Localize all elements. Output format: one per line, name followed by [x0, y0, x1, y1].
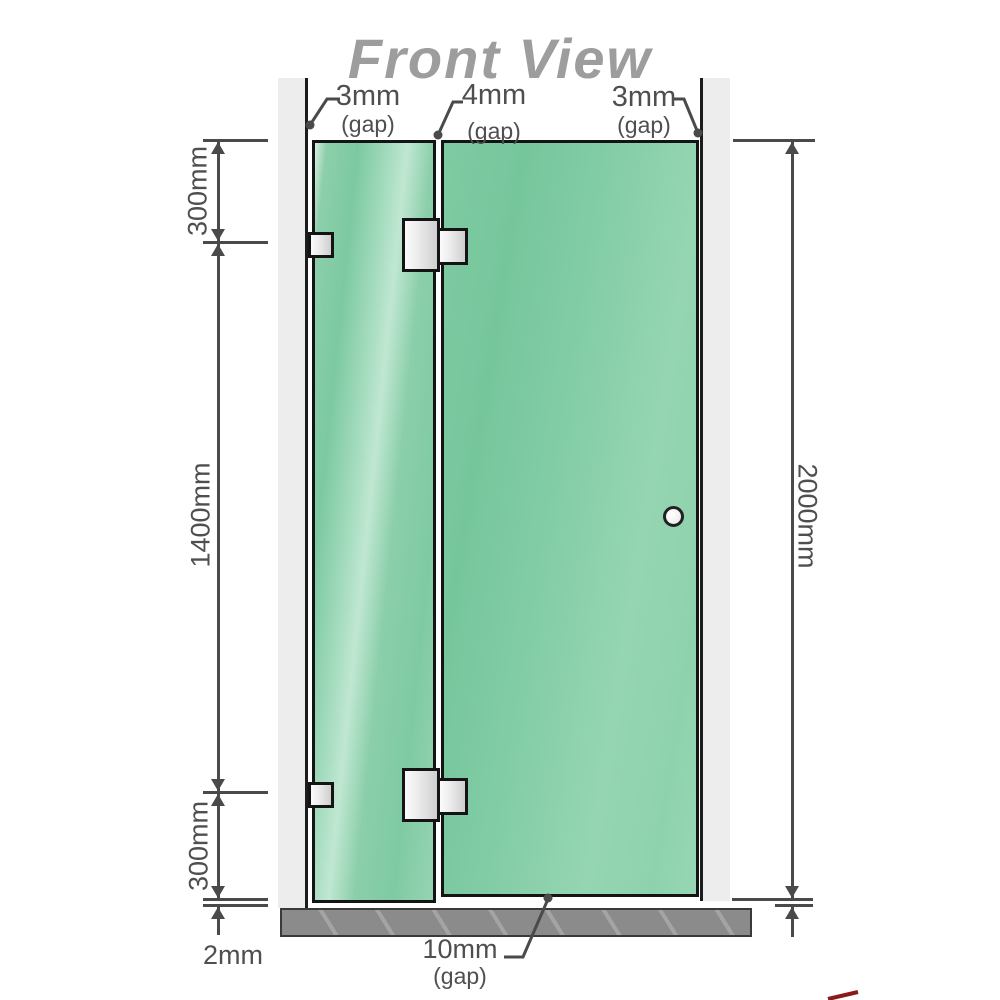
gap-value: 4mm: [453, 81, 535, 110]
dim-floor-clearance: 2mm: [203, 940, 263, 971]
hinge-bottom-icon: [402, 768, 440, 822]
watermark-fragment: [828, 992, 858, 999]
gap-label-top-left: 3mm (gap): [328, 82, 408, 136]
dim-middle-section: 1400mm: [186, 462, 217, 567]
leader-lines: [0, 0, 1000, 1000]
hinge-top-icon: [402, 218, 440, 272]
gap-value: 3mm: [604, 83, 684, 112]
gap-unit: (gap): [328, 113, 408, 136]
hinge-top-small-plate: [437, 228, 468, 265]
wall-bracket-top-icon: [308, 232, 334, 258]
gap-label-bottom: 10mm (gap): [415, 936, 505, 988]
dim-bottom-section: 300mm: [184, 801, 215, 891]
wall-bracket-bottom-icon: [308, 782, 334, 808]
hinge-bottom-small-plate: [437, 778, 468, 815]
gap-unit: (gap): [415, 965, 505, 988]
dim-top-section: 300mm: [183, 146, 214, 236]
gap-label-top-mid: 4mm (gap): [453, 81, 535, 143]
gap-unit: (gap): [604, 114, 684, 137]
dim-overall-height: 2000mm: [792, 463, 823, 568]
gap-unit: (gap): [453, 120, 535, 143]
gap-label-top-right: 3mm (gap): [604, 83, 684, 137]
gap-value: 10mm: [415, 936, 505, 963]
front-view-diagram: Front View 300mm 1400mm 300mm 2mm 2000mm…: [0, 0, 1000, 1000]
gap-value: 3mm: [328, 82, 408, 111]
